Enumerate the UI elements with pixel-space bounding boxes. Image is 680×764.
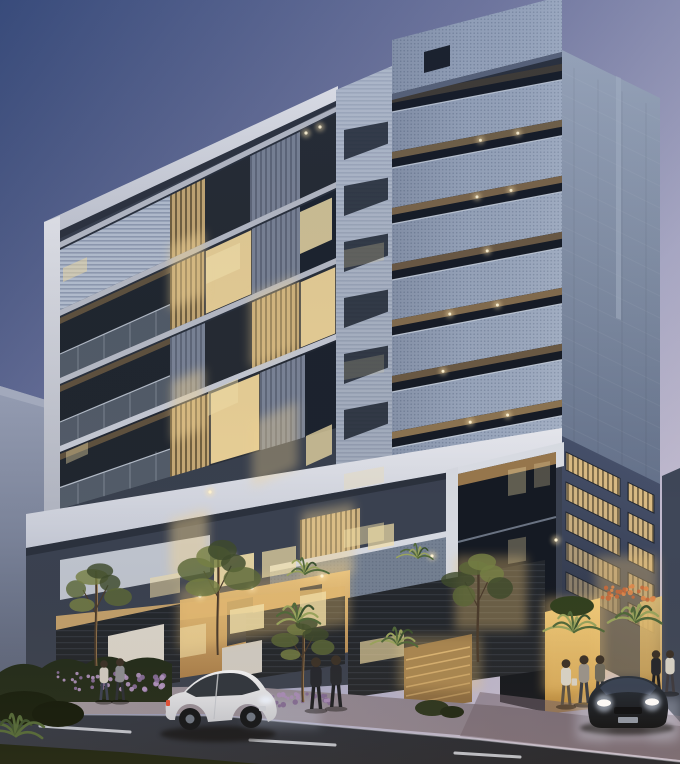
scene-svg xyxy=(0,0,680,764)
color-grade-overlay xyxy=(0,0,680,764)
architectural-render-scene xyxy=(0,0,680,764)
